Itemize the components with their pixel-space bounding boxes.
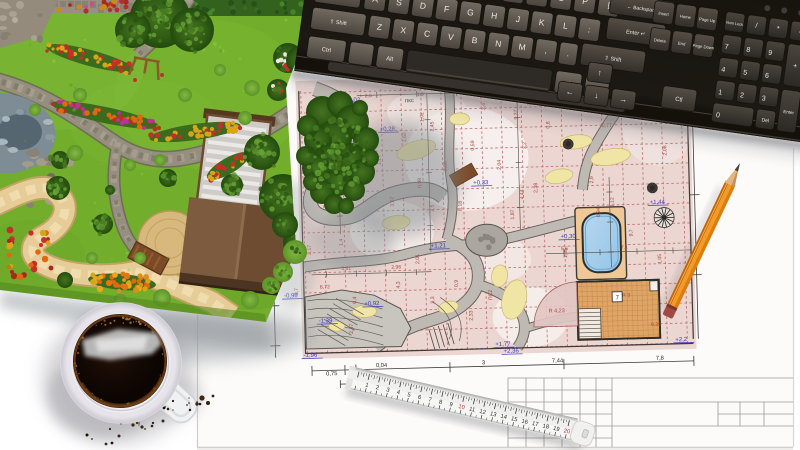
svg-text:←: ← (565, 87, 574, 97)
svg-text:M: M (518, 41, 526, 52)
svg-text:3,3: 3,3 (430, 296, 436, 303)
svg-text:ПС2: ПС2 (488, 290, 494, 301)
svg-text:7,8: 7,8 (656, 356, 664, 362)
svg-text:2,96: 2,96 (391, 264, 401, 270)
svg-text:2,33: 2,33 (468, 310, 474, 320)
svg-text:5,6: 5,6 (561, 246, 568, 252)
svg-text:2,38: 2,38 (533, 183, 539, 193)
svg-text:R 4,23: R 4,23 (548, 308, 564, 314)
svg-text:9,7: 9,7 (628, 229, 634, 236)
svg-text:→: → (619, 94, 628, 104)
svg-text:3,2: 3,2 (522, 142, 528, 149)
svg-text:1,05: 1,05 (657, 254, 663, 264)
svg-text:4,3: 4,3 (396, 281, 402, 288)
svg-text:0,9: 0,9 (454, 280, 460, 287)
svg-text:8,72: 8,72 (320, 284, 330, 290)
svg-text:9,35: 9,35 (651, 322, 661, 328)
svg-text:Alt: Alt (386, 56, 394, 63)
svg-text:2,47: 2,47 (349, 323, 355, 333)
svg-text:1,12: 1,12 (610, 197, 616, 207)
svg-text:0,59: 0,59 (470, 140, 476, 150)
svg-text:0,94: 0,94 (596, 207, 602, 217)
svg-text:4,44: 4,44 (519, 189, 525, 199)
svg-text:2,9: 2,9 (589, 176, 595, 183)
svg-text:1,87: 1,87 (510, 209, 516, 219)
svg-text:0,75: 0,75 (326, 371, 337, 377)
svg-text:2,04: 2,04 (497, 160, 503, 170)
svg-text:3: 3 (482, 360, 485, 366)
svg-text:R 3: R 3 (622, 292, 630, 298)
svg-text:8,18: 8,18 (458, 201, 464, 211)
svg-text:2,01: 2,01 (415, 254, 421, 264)
svg-text:0,04: 0,04 (376, 363, 388, 369)
svg-text:7,1: 7,1 (621, 245, 628, 251)
svg-text:G: G (466, 7, 474, 18)
svg-text:7,44: 7,44 (552, 358, 564, 364)
svg-text:0,4: 0,4 (352, 296, 358, 303)
svg-text:Del: Del (761, 117, 769, 124)
svg-text:Ctl: Ctl (675, 97, 683, 104)
